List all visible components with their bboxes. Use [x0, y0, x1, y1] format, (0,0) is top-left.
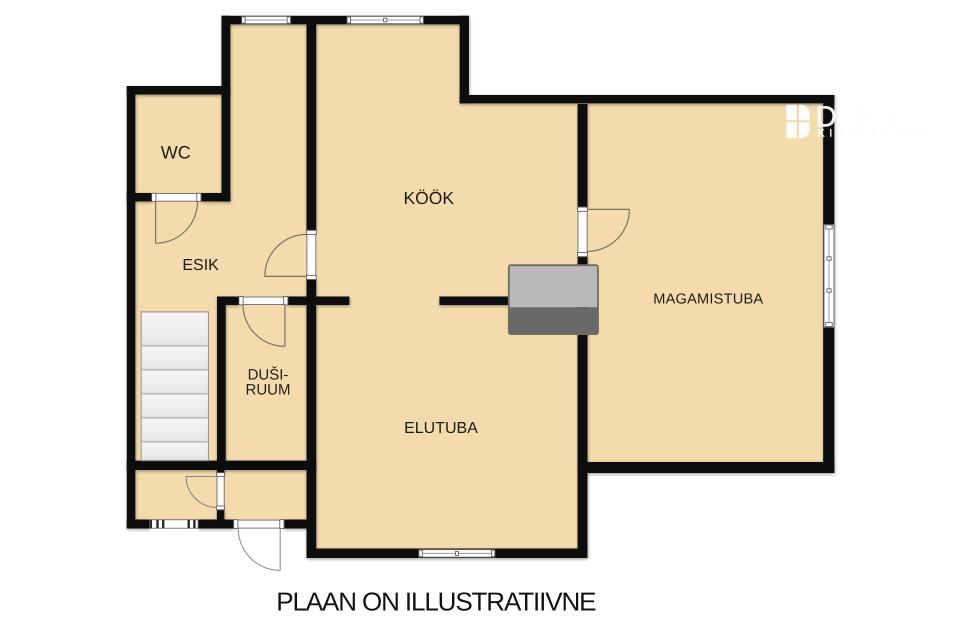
svg-text:KINNISVARA: KINNISVARA [818, 128, 929, 140]
svg-text:WC: WC [161, 143, 191, 163]
svg-text:MAGAMISTUBA: MAGAMISTUBA [653, 291, 763, 307]
svg-text:KÖÖK: KÖÖK [404, 188, 455, 208]
svg-text:ELUTUBA: ELUTUBA [404, 420, 478, 437]
svg-text:RUUM: RUUM [246, 382, 291, 399]
svg-text:ESIK: ESIK [182, 257, 219, 274]
svg-text:PLAAN ON ILLUSTRATIIVNE: PLAAN ON ILLUSTRATIIVNE [276, 587, 596, 617]
